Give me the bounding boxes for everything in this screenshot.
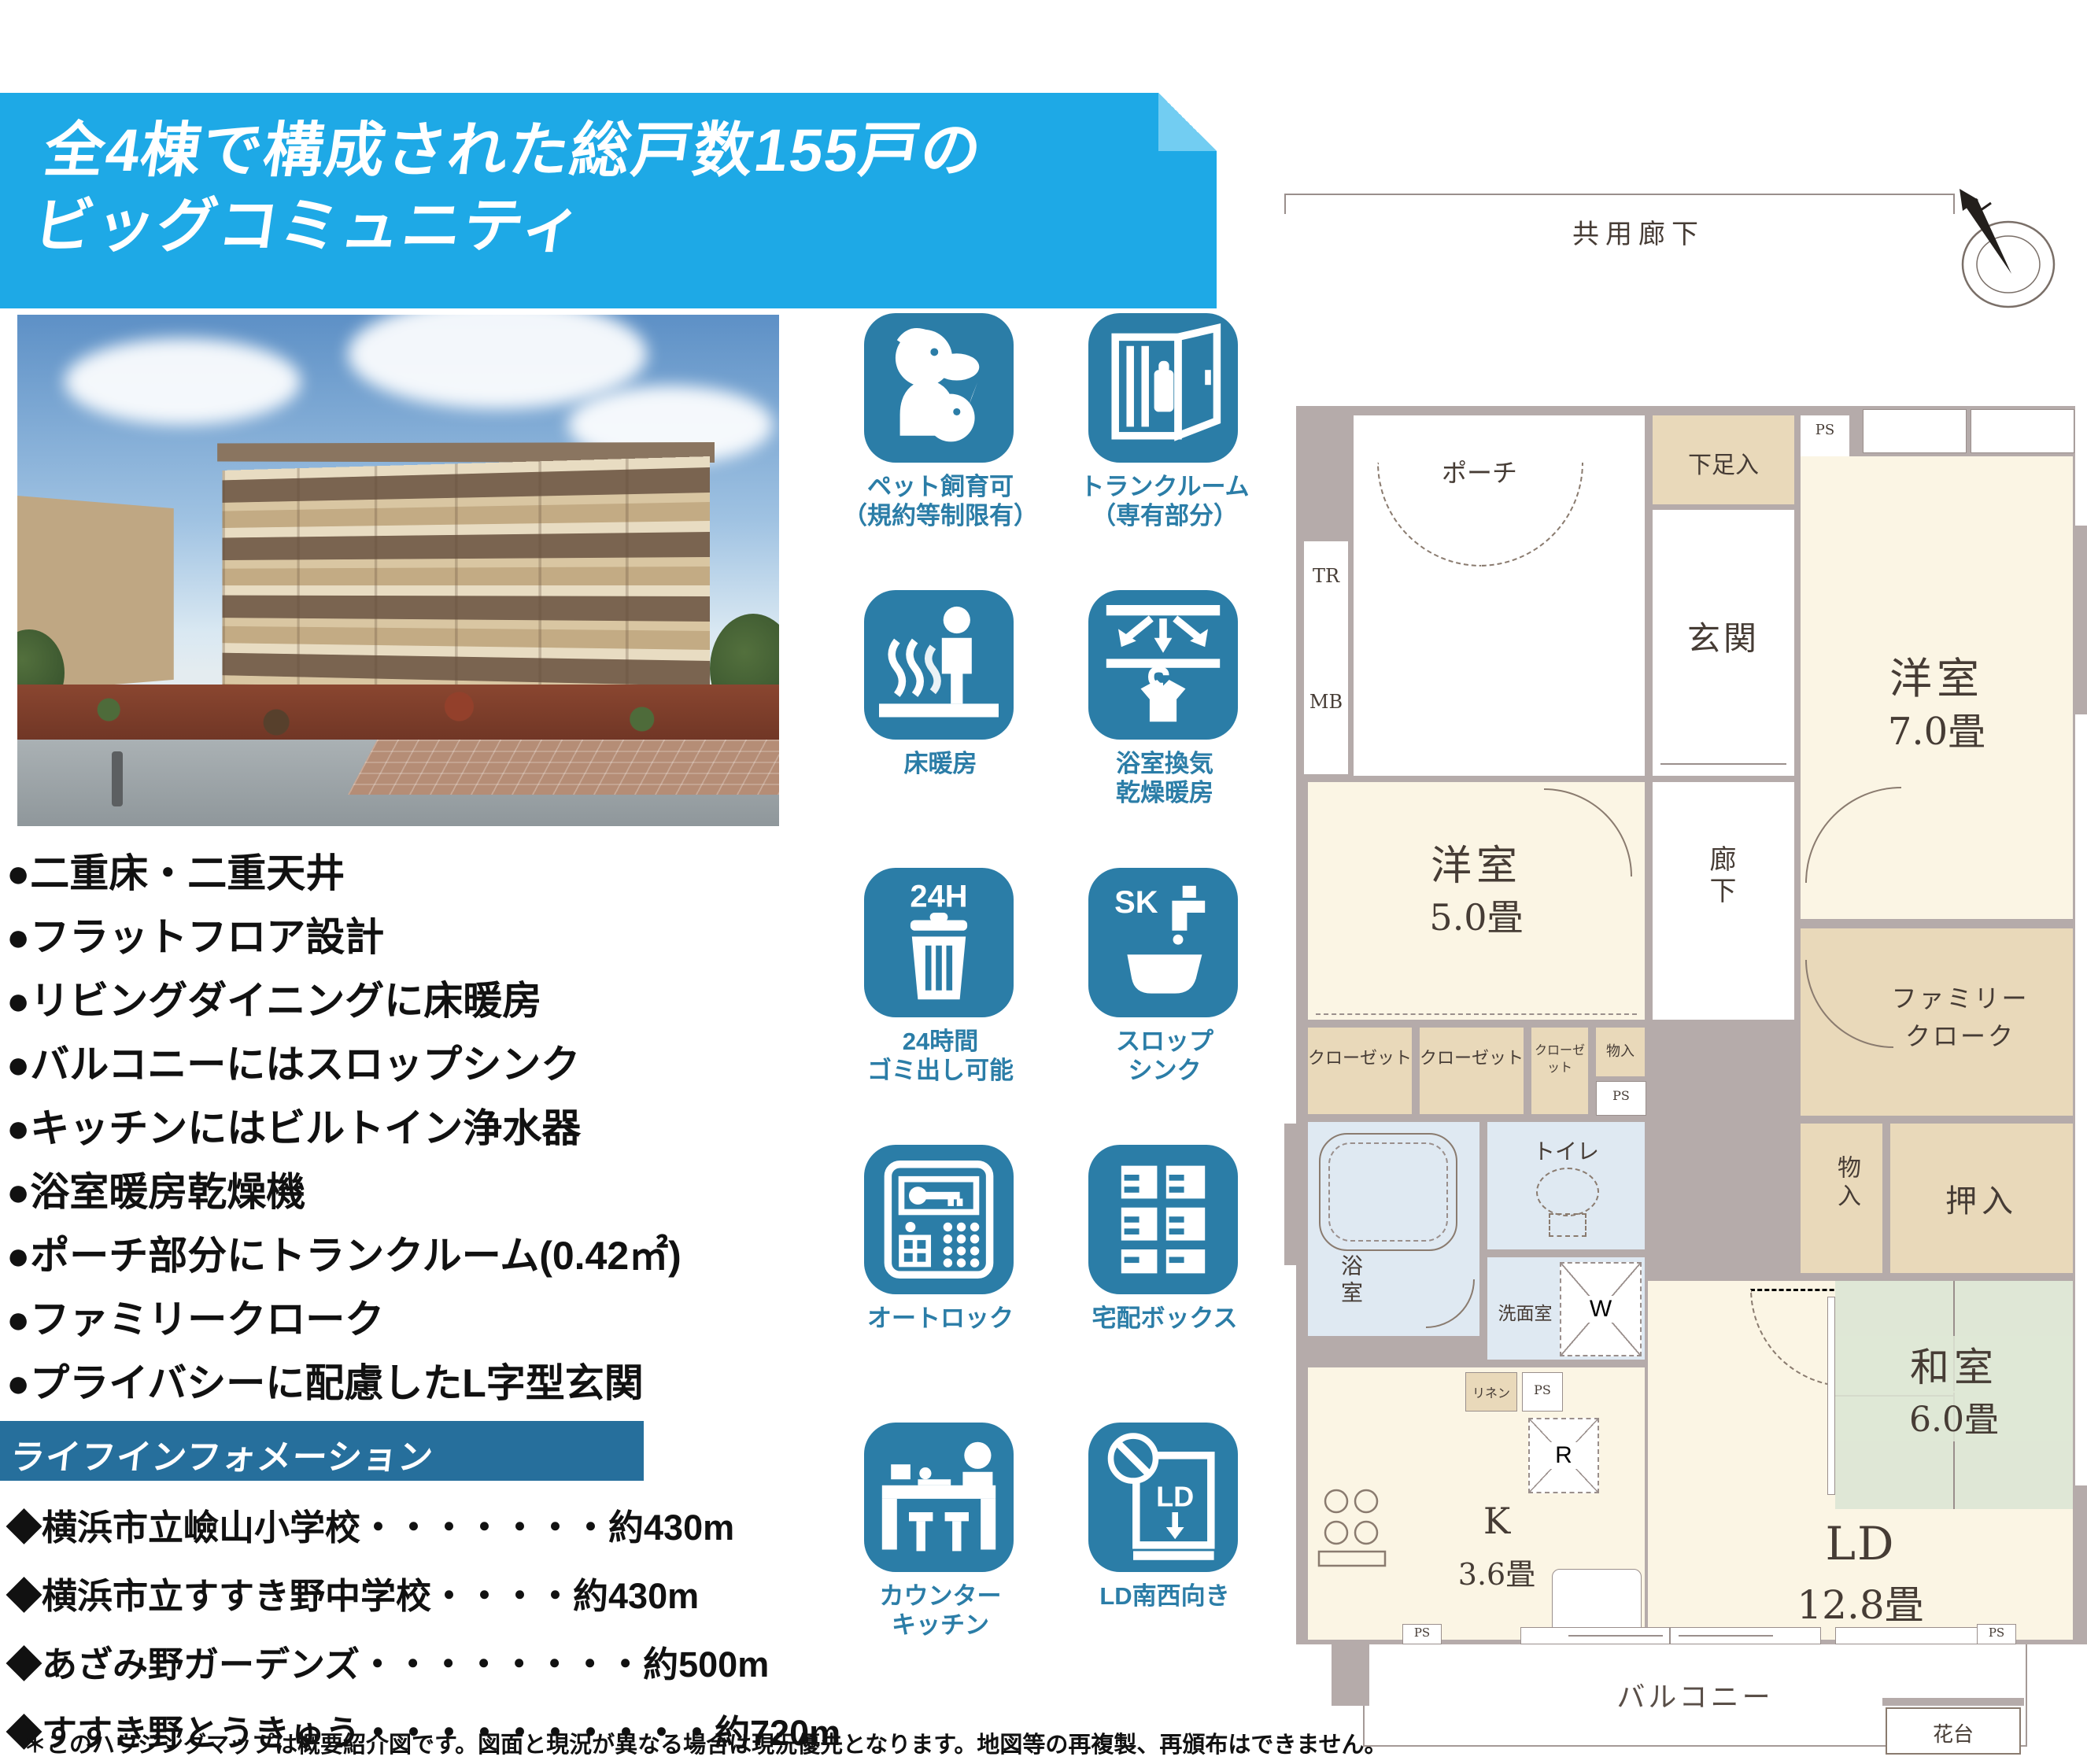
bath-ventilation-icon (1088, 590, 1238, 740)
japanese-room-size: 6.0畳 (1835, 1391, 2073, 1441)
feature-item: ●ポーチ部分にトランクルーム(0.42㎡) (6, 1224, 840, 1288)
sliding-window (1835, 1627, 1978, 1644)
washer-position: W (1560, 1262, 1642, 1356)
ps-label: PS (1978, 1626, 2015, 1640)
ld-label: LD (1648, 1517, 2073, 1570)
room-storage-top: 物入 (1596, 1028, 1645, 1076)
sliding-window (1520, 1627, 1821, 1644)
window-divider (1669, 1628, 1671, 1644)
counter-kitchen-icon (864, 1423, 1014, 1572)
door-arc (1805, 787, 1901, 883)
garbage-24h-icon: 24H (864, 868, 1014, 1017)
kitchen-label: K (1426, 1500, 1568, 1542)
shoe-box-label: 下足入 (1653, 445, 1794, 480)
closet1-label: クローゼット (1308, 1048, 1412, 1070)
life-info-title: ライフインフォメーション (0, 1421, 647, 1479)
ps-band-right: PS (1977, 1624, 2016, 1644)
badge-sk: SK (1114, 885, 1158, 920)
room-western-5: 洋室 5.0畳 (1308, 782, 1645, 1020)
tr-label: TR (1304, 565, 1348, 587)
western5-label: 洋室 (1308, 832, 1645, 891)
feature-item: ●プライバシーに配慮したL字型玄関 (6, 1352, 840, 1415)
room-bath: 浴室 (1308, 1122, 1479, 1336)
japanese-room-label: 和室 (1835, 1336, 2073, 1393)
ps-mid-box: PS (1522, 1372, 1563, 1412)
page-title: 全4棟で構成された総戸数155戸の ビッグコミュニティ (0, 93, 1228, 264)
slop-sink-label: スロップシンク (1047, 1027, 1283, 1085)
room-western-7: 洋室 7.0畳 (1801, 456, 2073, 919)
delivery-box-label: 宅配ボックス (1047, 1304, 1283, 1333)
fridge-position: R (1528, 1418, 1599, 1493)
ps-label: PS (1523, 1382, 1562, 1397)
auto-lock-icon (864, 1145, 1014, 1294)
headline-banner: 全4棟で構成された総戸数155戸の ビッグコミュニティ (0, 93, 1217, 308)
corridor-line (1284, 194, 1955, 195)
bathtub-inner (1328, 1142, 1448, 1242)
kitchen-size: 3.6畳 (1426, 1550, 1568, 1593)
room-hallway: 廊下 (1653, 782, 1794, 1020)
life-info-item: ◆あざみ野ガーデンズ・・・・・・・・約500m (6, 1630, 840, 1699)
red-hedge (17, 685, 779, 747)
balcony-label: バルコニー (1553, 1674, 1837, 1715)
bath-label: 浴室 (1335, 1254, 1366, 1308)
room-toilet: トイレ (1487, 1122, 1645, 1249)
linen-label: リネン (1466, 1382, 1516, 1401)
stove-icon (1313, 1478, 1391, 1572)
flyer-page: 全4棟で構成された総戸数155戸の ビッグコミュニティ ●二重床・二重天井 ●フ… (0, 0, 2087, 1764)
room-kitchen: リネン PS R K 3.6畳 (1308, 1367, 1645, 1640)
ps-label: PS (1597, 1088, 1646, 1103)
property-photo (17, 315, 779, 826)
western7-label: 洋室 (1801, 644, 2073, 706)
room-ps-closet-row: PS (1596, 1081, 1646, 1116)
feature-item: ●浴室暖房乾燥機 (6, 1161, 840, 1224)
toilet-tank (1549, 1213, 1586, 1237)
fridge-label: R (1530, 1442, 1598, 1469)
delivery-box-icon (1088, 1145, 1238, 1294)
storage-label: 物入 (1829, 1155, 1864, 1212)
linen-box: リネン (1465, 1372, 1517, 1412)
compass-icon (1930, 179, 2071, 321)
garbage-24h-label: 24時間ゴミ出し可能 (822, 1027, 1058, 1085)
mb-label: MB (1304, 691, 1348, 713)
storage-top-label: 物入 (1596, 1040, 1645, 1061)
flower-stand: 花台 (1886, 1707, 2021, 1755)
floor-heating-label: 床暖房 (822, 749, 1058, 778)
hallway-label: 廊下 (1701, 845, 1740, 908)
life-info-list: ◆横浜市立嶮山小学校・・・・・・・約430m ◆横浜市立すすき野中学校・・・・約… (6, 1493, 840, 1764)
badge-24h: 24H (910, 879, 967, 913)
feature-item: ●バルコニーにはスロップシンク (6, 1033, 840, 1097)
room-porch: ポーチ (1354, 415, 1645, 776)
badge-ld: LD (1156, 1480, 1194, 1512)
bath-ventilation-label: 浴室換気乾燥暖房 (1047, 749, 1283, 807)
room-closet-1: クローゼット (1308, 1028, 1412, 1114)
auto-lock-label: オートロック (822, 1304, 1058, 1333)
ps-label: PS (1403, 1626, 1441, 1640)
pets-allowed-label: ペット飼育可（規約等制限有） (822, 472, 1058, 530)
washroom-label: 洗面室 (1487, 1298, 1563, 1325)
building-facade (223, 456, 710, 716)
room-washroom: W 洗面室 (1487, 1257, 1645, 1360)
washer-label: W (1561, 1296, 1640, 1323)
room-oshiire: 押入 (1890, 1124, 2073, 1273)
toilet-bowl (1536, 1168, 1599, 1216)
flower-stand-label: 花台 (1887, 1718, 2019, 1747)
door-arc (1426, 1279, 1475, 1328)
corridor-label: 共用廊下 (1520, 212, 1756, 251)
floor-heating-icon (864, 590, 1014, 740)
room-storage: 物入 (1801, 1124, 1882, 1273)
window-line (1568, 1635, 1663, 1637)
ld-size: 12.8畳 (1648, 1574, 2073, 1630)
sliding-door (1827, 1297, 1835, 1495)
slop-sink-icon: SK (1088, 868, 1238, 1017)
wardrobe-top (1971, 409, 2074, 453)
wardrobe-top (1863, 409, 1967, 453)
window-line (1679, 1635, 1773, 1637)
entrance-label: 玄関 (1653, 612, 1794, 660)
trunk-room-icon (1088, 313, 1238, 463)
feature-item: ●フラットフロア設計 (6, 906, 840, 969)
meter-box-strip: TR MB (1304, 541, 1348, 774)
ps-label: PS (1801, 422, 1849, 438)
porch-label: ポーチ (1409, 453, 1550, 489)
family-cloak-label1: ファミリー (1848, 979, 2073, 1015)
family-cloak-label2: クローク (1848, 1017, 2073, 1053)
closet3-label: クローゼット (1531, 1042, 1588, 1076)
toilet-label: トイレ (1487, 1135, 1645, 1166)
entrance-step (1660, 763, 1786, 765)
feature-item: ●ファミリークローク (6, 1288, 840, 1352)
brick-apron (348, 740, 779, 795)
life-info-header: ライフインフォメーション (0, 1421, 644, 1481)
feature-item: ●二重床・二重天井 (6, 842, 840, 906)
pets-allowed-icon (864, 313, 1014, 463)
ld-southwest-label: LD南西向き (1047, 1581, 1283, 1611)
room-closet-2: クローゼット (1420, 1028, 1524, 1114)
life-info-item: ◆横浜市立すすき野中学校・・・・約430m (6, 1562, 840, 1630)
wall-pocket (2071, 526, 2087, 714)
wall-pocket (1284, 1124, 1297, 1265)
feature-item: ●リビングダイニングに床暖房 (6, 969, 840, 1033)
oshiire-label: 押入 (1890, 1175, 2073, 1221)
room-japanese: 和室 6.0畳 (1835, 1281, 2073, 1509)
life-info-item: ◆横浜市立嶮山小学校・・・・・・・約430m (6, 1493, 840, 1562)
feature-list: ●二重床・二重天井 ●フラットフロア設計 ●リビングダイニングに床暖房 ●バルコ… (6, 842, 840, 1415)
floor-plan: 共用廊下 ポーチ TR MB 下足入 PS 玄関 (1284, 179, 2087, 1764)
closet-doors-line (1316, 1013, 1637, 1015)
bollard (112, 751, 123, 806)
western5-size: 5.0畳 (1308, 889, 1645, 941)
trunk-room-label: トランクルーム（専有部分） (1047, 472, 1283, 530)
ld-southwest-icon: LD (1088, 1423, 1238, 1572)
kitchen-sink (1552, 1569, 1642, 1635)
counter-kitchen-label: カウンターキッチン (822, 1581, 1058, 1640)
room-entrance: 玄関 (1653, 510, 1794, 776)
room-shoe-box: 下足入 (1653, 415, 1794, 504)
balcony-pier (1332, 1644, 1369, 1706)
western7-size: 7.0畳 (1801, 700, 2073, 755)
flower-stand-wall (1882, 1698, 2024, 1706)
wall-pocket (2071, 1485, 2087, 1644)
room-closet-3: クローゼット (1531, 1028, 1588, 1114)
corridor-tick (1284, 194, 1286, 214)
closet2-label: クローゼット (1420, 1048, 1524, 1070)
ps-band-left: PS (1402, 1624, 1442, 1644)
room-family-cloak: ファミリー クローク (1801, 928, 2073, 1116)
feature-item: ●キッチンにはビルトイン浄水器 (6, 1097, 840, 1161)
bathtub (1319, 1133, 1457, 1251)
cloud (65, 338, 301, 425)
